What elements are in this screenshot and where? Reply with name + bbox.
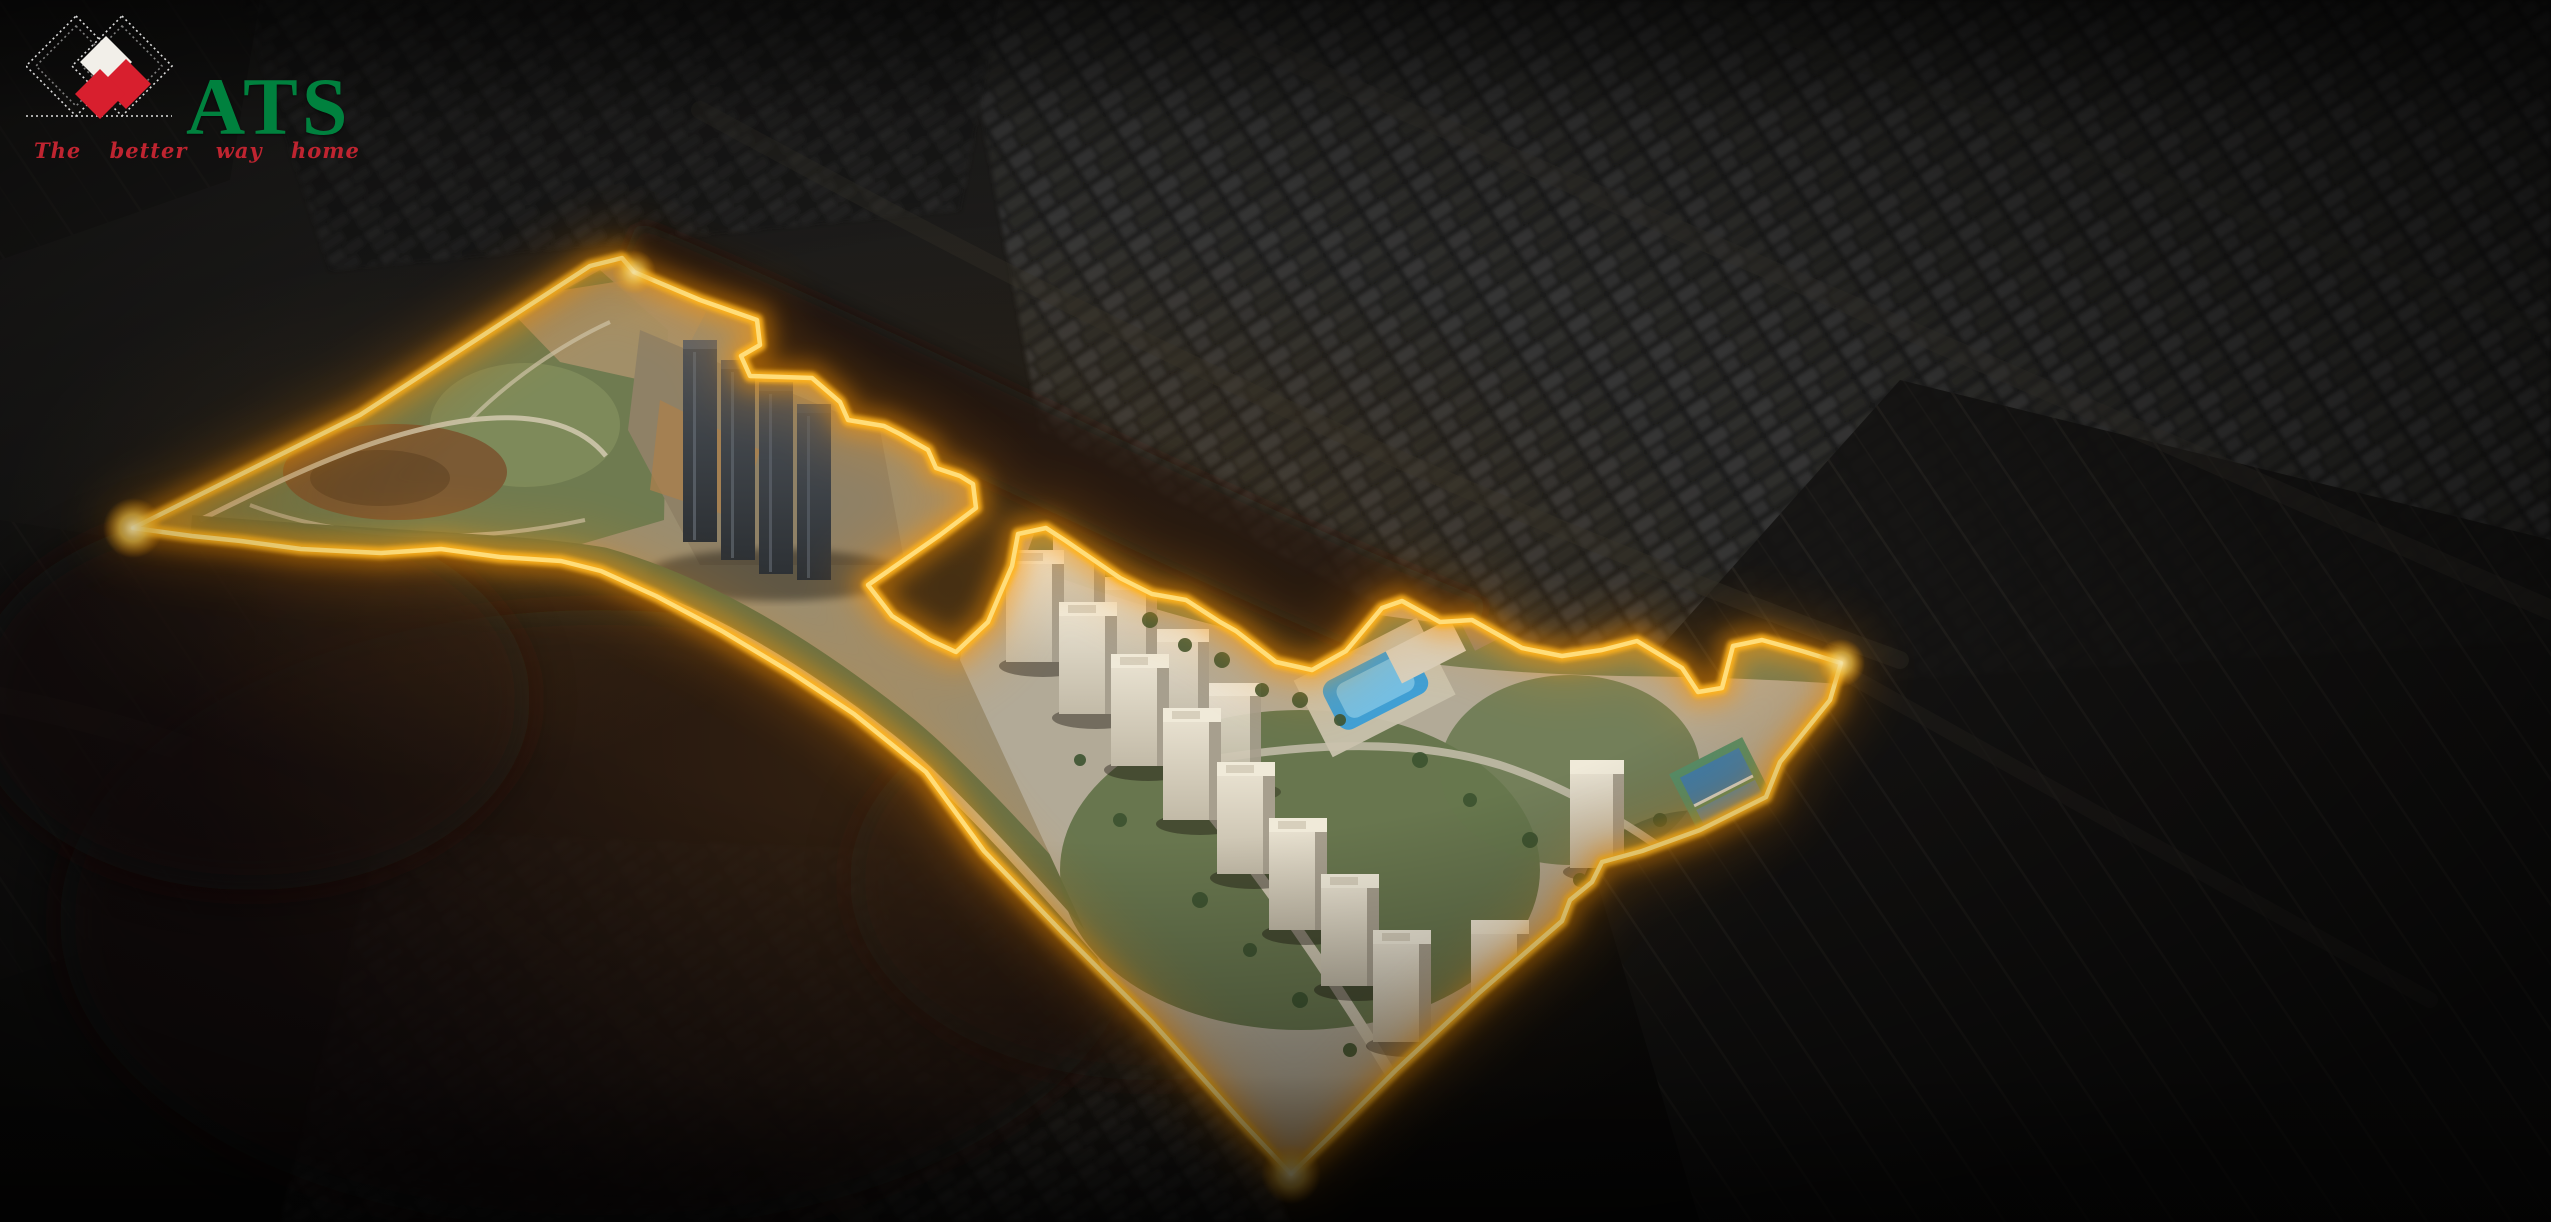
brand-text: ATS — [186, 73, 351, 140]
aerial-promo-still: { "logo": { "brand": "ATS", "tagline": "… — [0, 0, 2551, 1222]
ats-diamond-icon — [26, 12, 178, 134]
ats-logo: ATS The better way home — [26, 12, 360, 163]
aerial-scene — [0, 0, 2551, 1222]
brand-tagline: The better way home — [26, 138, 360, 163]
ats-logo-row: ATS — [26, 12, 360, 134]
